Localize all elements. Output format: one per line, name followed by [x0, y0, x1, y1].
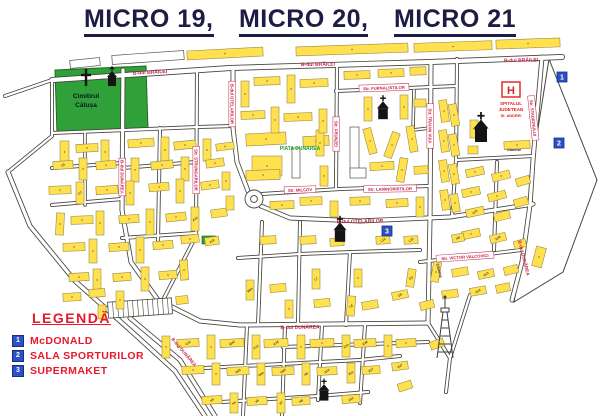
piata-dunarea-label: PIATA DUNAREA: [280, 146, 321, 152]
building-mark: [144, 278, 145, 279]
street-label: Str. LAMINORISTILOR: [368, 186, 412, 192]
building: [89, 288, 106, 297]
building-mark: [266, 165, 267, 166]
building-mark: [149, 221, 150, 222]
cemetery-label: Cătușa: [75, 102, 97, 109]
building-mark: [290, 88, 291, 89]
building-mark: [322, 120, 323, 121]
tower-platform: [441, 308, 449, 312]
building: [397, 380, 413, 392]
church-icon: [474, 112, 489, 142]
camine-label: Cămine: [507, 147, 522, 152]
cemetery-label: Cimitirul: [73, 93, 100, 100]
building-mark: [179, 190, 180, 191]
building-outline: [292, 148, 300, 178]
building-mark: [403, 106, 404, 107]
building-mark: [134, 169, 135, 170]
building-mark: [206, 149, 207, 150]
legend-label-3: SUPERMAKET: [30, 365, 108, 377]
building-mark: [419, 206, 420, 207]
building-mark: [244, 93, 245, 94]
church-body: [335, 230, 345, 242]
map-marker-number: 3: [385, 229, 389, 236]
building-mark: [64, 151, 65, 152]
hospital-name: SPITALUL: [500, 101, 522, 106]
road-surface: [240, 323, 428, 325]
building-mark: [96, 279, 97, 280]
legend: LEGENDĂ 1 McDONALD 2 SALA SPORTURILOR 3 …: [12, 310, 202, 376]
building-outline: [350, 127, 359, 173]
legend-item-supermarket: 3 SUPERMAKET: [12, 365, 202, 376]
legend-marker-1: 1: [12, 335, 24, 347]
building-outline: [350, 168, 366, 178]
building-mark: [104, 151, 105, 152]
building: [300, 236, 316, 245]
street-label: Str. FRUNZEI: [333, 121, 338, 147]
legend-marker-2: 2: [12, 350, 24, 362]
building-mark: [184, 168, 185, 169]
building-mark: [323, 175, 324, 176]
map-page: MICRO 19, MICRO 20, MICRO 21 C5C7A10A12D…: [0, 0, 600, 416]
building: [226, 196, 234, 210]
building-mark: [288, 308, 289, 309]
building-mark: [99, 222, 100, 223]
legend-label-1: McDONALD: [30, 335, 93, 347]
building: [495, 283, 510, 294]
building-mark: [357, 277, 358, 278]
street-label: B-dul DUNĂREA: [119, 160, 124, 194]
building: [176, 295, 189, 304]
road-surface: [5, 80, 52, 96]
building-mark: [300, 346, 301, 347]
building: [410, 67, 426, 76]
building-mark: [215, 373, 216, 374]
building-mark: [473, 128, 474, 129]
building-mark: [164, 149, 165, 150]
street-label: B-dul BRĂILEI: [301, 60, 336, 68]
building: [314, 298, 331, 307]
street-label: B-dul OTELARILOR: [337, 218, 384, 225]
road-surface: [52, 199, 122, 205]
street-label: B-dul BRĂILEI: [504, 56, 539, 64]
hospital-name: JUDETEAN: [499, 107, 524, 112]
building: [414, 99, 426, 107]
building: [414, 166, 428, 175]
building: [451, 267, 468, 278]
street-label: Str. TRAIAN VUIA: [427, 109, 432, 144]
building: [515, 175, 531, 187]
legend-item-sala-sporturilor: 2 SALA SPORTURILOR: [12, 350, 202, 361]
building-mark: [387, 345, 388, 346]
building-mark: [129, 192, 130, 193]
road-surface: [450, 295, 470, 358]
building-mark: [274, 119, 275, 120]
road-outline: [8, 172, 205, 416]
road-surface: [8, 172, 205, 416]
building-mark: [319, 142, 320, 143]
church-body: [475, 129, 487, 143]
church-body: [108, 77, 116, 86]
church-icon: [377, 95, 389, 119]
legend-heading: LEGENDĂ: [32, 310, 202, 326]
legend-label-2: SALA SPORTURILOR: [30, 350, 144, 362]
building: [330, 201, 338, 217]
building: [361, 300, 378, 311]
building: [270, 283, 287, 292]
building-mark: [225, 180, 226, 181]
building: [211, 208, 228, 218]
building: [260, 236, 276, 245]
legend-item-mcdonald: 1 McDONALD: [12, 335, 202, 346]
street-label: Str. MILCOV: [288, 187, 313, 193]
building-outline: [70, 57, 101, 68]
building-outline: [112, 50, 184, 64]
hospital-h-symbol: H: [507, 85, 515, 97]
building: [419, 299, 435, 310]
roundabout-island: [251, 196, 258, 203]
building-mark: [139, 249, 140, 250]
street-label: Str. STRUNGARILOR: [193, 149, 198, 191]
building-mark: [210, 346, 211, 347]
building-mark: [82, 168, 83, 169]
church-body: [378, 108, 388, 119]
map-marker-number: 2: [557, 141, 561, 148]
building-mark: [367, 108, 368, 109]
building-mark: [92, 250, 93, 251]
street-label: B-dul OTELARILOR: [229, 84, 234, 125]
building: [468, 146, 478, 154]
church-roof: [377, 101, 389, 108]
map-marker-number: 1: [560, 75, 564, 82]
road-surface: [428, 323, 450, 392]
legend-marker-3: 3: [12, 365, 24, 377]
tower-beacon: [444, 296, 446, 298]
building-mark: [119, 299, 120, 300]
street-label: B-dul DUNĂREA: [280, 323, 320, 331]
church-body: [320, 391, 329, 401]
hospital-name: Sf. ANDREI: [501, 113, 522, 118]
